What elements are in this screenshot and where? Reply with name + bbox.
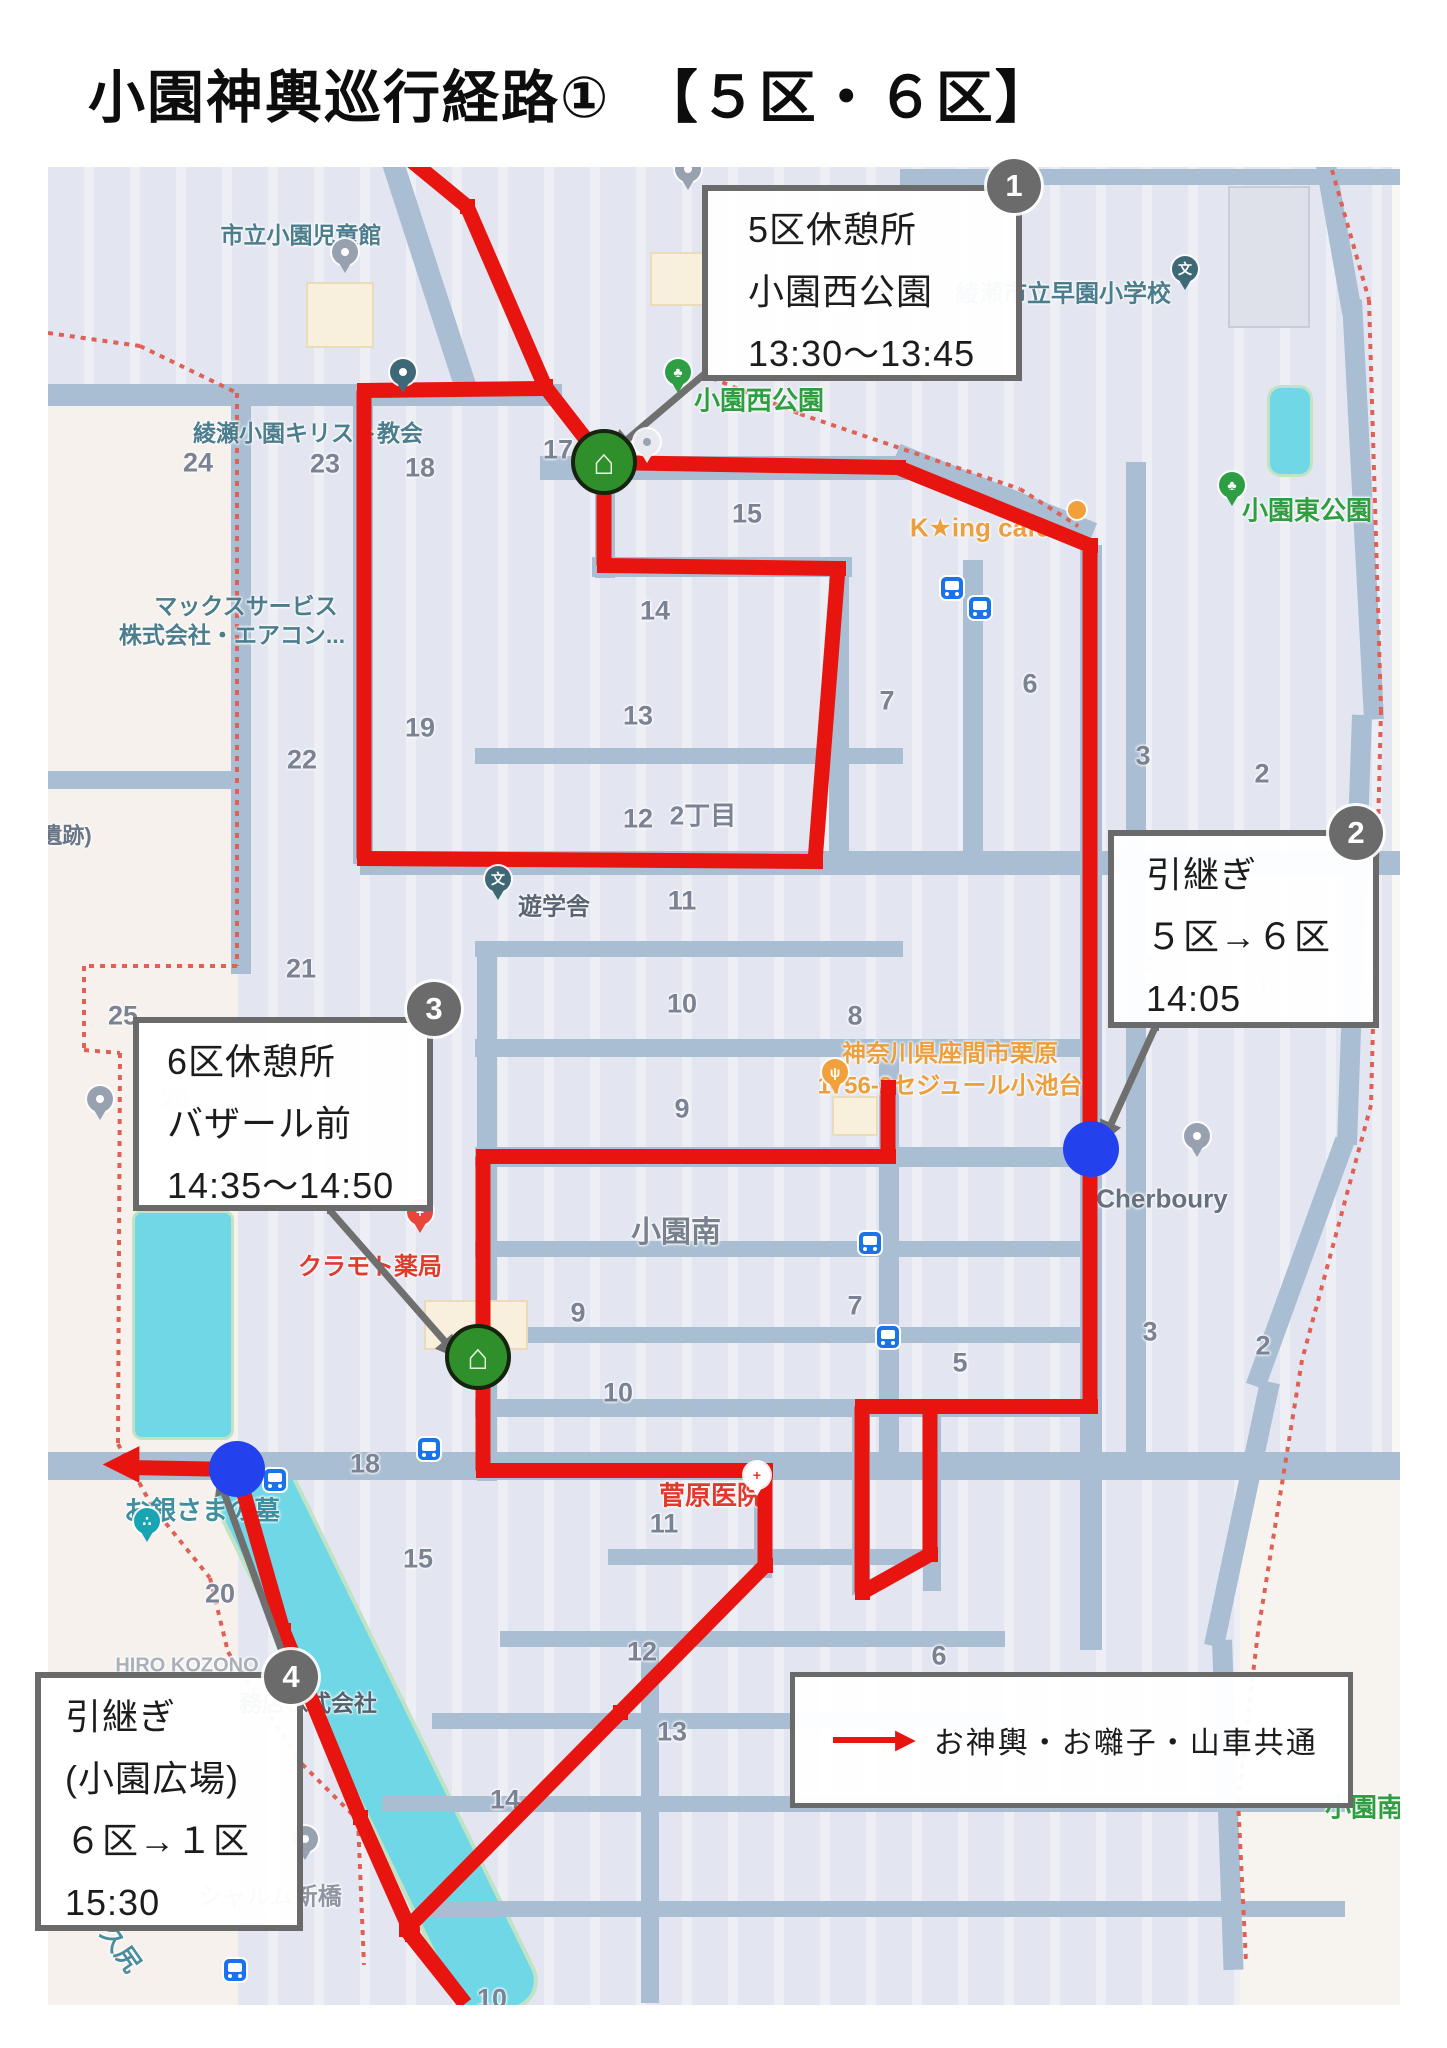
map-label: 神奈川県座間市栗原: [842, 1034, 1058, 1069]
pin-dot: [684, 167, 692, 173]
map-label: 小園南: [631, 1207, 721, 1251]
map-label: 9: [570, 1298, 585, 1329]
legend-box: ▶ お神輿・お囃子・山車共通: [790, 1672, 1353, 1808]
bus-window: [268, 1473, 282, 1482]
map-label: Cherboury: [1096, 1184, 1227, 1215]
map-label: 14: [640, 596, 670, 627]
map-label: 1756-2セジュール小池台: [817, 1066, 1082, 1101]
pin-tail: [1226, 496, 1238, 506]
map-label: 21: [286, 954, 316, 985]
procession-route-joint: [881, 1149, 896, 1164]
pin-tail: [682, 180, 694, 190]
info-line: (小園広場): [65, 1748, 297, 1810]
procession-route: [923, 1406, 938, 1554]
pond: [1267, 385, 1313, 477]
info-line: ６区→１区: [65, 1810, 297, 1872]
legend-arrow-shaft: [833, 1737, 899, 1743]
procession-route-joint: [476, 1463, 491, 1478]
map-label: 2: [1255, 1331, 1270, 1362]
info-box-rest-6: 6区休憩所 バザール前 14:35〜14:50: [133, 1017, 433, 1211]
handover-dot: [209, 1441, 265, 1497]
place-pin: [1184, 1123, 1210, 1157]
bus-window: [881, 1330, 895, 1339]
pin-tail: [829, 1083, 841, 1093]
park-pin-icon: ♣: [1219, 472, 1245, 498]
building: [832, 1096, 878, 1136]
procession-route: [483, 1463, 765, 1478]
map-label: 8: [847, 1001, 862, 1032]
hospital-pin-icon: +: [744, 1462, 770, 1488]
pin-tail: [339, 263, 351, 273]
road: [48, 771, 238, 789]
pin-tail: [397, 383, 409, 393]
pin-tail: [94, 1110, 106, 1120]
bus-stop-icon: [418, 1438, 440, 1460]
info-line: 14:05: [1146, 968, 1373, 1030]
pin-tail: [1191, 1147, 1203, 1157]
info-line: 引継ぎ: [65, 1686, 297, 1748]
bus-window: [945, 581, 959, 590]
map-label: 7: [879, 686, 894, 717]
procession-route-joint: [613, 1705, 628, 1720]
map-label: 13: [623, 701, 653, 732]
grave-pin-icon: ∴: [134, 1508, 160, 1534]
bus-wheel: [881, 1341, 885, 1345]
map-label: 3: [1135, 741, 1150, 772]
grave-pin: ∴: [134, 1508, 160, 1542]
procession-route: [364, 851, 815, 869]
bus-wheel: [955, 592, 959, 596]
hospital-pin: +: [744, 1462, 770, 1496]
school-pin-icon: 文: [1172, 256, 1198, 282]
map-label: 遊学舎: [518, 887, 590, 922]
info-box-handover-4: 引継ぎ (小園広場) ６区→１区 15:30: [35, 1672, 303, 1931]
info-line: 15:30: [65, 1872, 297, 1934]
city-boundary-dotted: [84, 964, 237, 968]
legend-label: お神輿・お囃子・山車共通: [934, 1718, 1318, 1762]
procession-route: [855, 1406, 870, 1592]
map-label: 12: [623, 804, 653, 835]
procession-route: [862, 1399, 1090, 1414]
legend-arrow-icon: ▶: [895, 1724, 916, 1755]
road: [231, 384, 251, 974]
info-line: ５区→６区: [1146, 906, 1373, 968]
park-pin-icon: ♣: [665, 359, 691, 385]
place-pin: [675, 167, 701, 190]
city-boundary-dotted: [235, 393, 239, 966]
pin-dot: [96, 1095, 104, 1103]
info-line: 14:35〜14:50: [167, 1155, 427, 1217]
map-label: 5: [952, 1348, 967, 1379]
restaurant-pin-icon: ψ: [822, 1059, 848, 1085]
pin-tail: [641, 453, 653, 463]
procession-route: [483, 1149, 888, 1164]
bus-wheel: [983, 612, 987, 616]
map-label: 9: [674, 1094, 689, 1125]
bus-wheel: [268, 1484, 272, 1488]
procession-route-joint: [891, 460, 906, 475]
poster-page: 小園神輿巡行経路① 【５区・６区】 市立小園児童館綾瀬小園キリスト教会マックスサ…: [0, 0, 1447, 2048]
building: [306, 282, 374, 348]
map-label: 11: [650, 1509, 679, 1540]
procession-route: [881, 1087, 896, 1156]
pin-dot: [643, 438, 651, 446]
map-label: 12: [627, 1637, 657, 1668]
cafe-pin: [1068, 501, 1086, 519]
bus-wheel: [973, 612, 977, 616]
bus-stop-icon: [859, 1232, 881, 1254]
road: [500, 1631, 1005, 1647]
place-pin: [332, 239, 358, 273]
bus-window: [863, 1236, 877, 1245]
procession-route-joint: [923, 1547, 938, 1562]
map-label: 24: [183, 448, 213, 479]
info-line: 5区休憩所: [748, 199, 1016, 261]
map-label: 17: [543, 435, 573, 466]
info-line: 小園西公園: [748, 261, 1016, 323]
badge-3: 3: [407, 982, 461, 1036]
bus-stop-icon: [224, 1959, 246, 1981]
procession-route-joint: [597, 558, 612, 573]
map-label: 小園西公園: [694, 381, 824, 418]
bus-wheel: [238, 1974, 242, 1978]
map-label: 22: [287, 745, 317, 776]
map-label: 18: [405, 453, 435, 484]
procession-route: [1083, 545, 1098, 1406]
info-box-rest-5: 5区休憩所 小園西公園 13:30〜13:45: [702, 185, 1022, 381]
procession-route-joint: [808, 854, 823, 869]
bus-stop-icon: [941, 577, 963, 599]
handover-dot: [1063, 1121, 1119, 1177]
school-pin-icon: 文: [485, 866, 511, 892]
bus-wheel: [422, 1453, 426, 1457]
district-tint: [1392, 167, 1400, 1462]
bus-wheel: [278, 1484, 282, 1488]
map-label: 6: [1022, 669, 1037, 700]
procession-route-joint: [357, 383, 372, 398]
park-pin: ♣: [665, 359, 691, 393]
pin-dot: [399, 368, 407, 376]
map-label: 綾瀬小園キリスト教会: [193, 414, 423, 448]
rest-house-icon: ⌂: [571, 429, 637, 495]
pin-tail: [751, 1486, 763, 1496]
badge-1: 1: [987, 159, 1041, 213]
pin-tail: [672, 383, 684, 393]
building: [1228, 186, 1310, 328]
info-box-handover-2: 引継ぎ ５区→６区 14:05: [1108, 830, 1379, 1028]
procession-route-joint: [460, 199, 475, 214]
city-boundary-dotted: [82, 966, 86, 1050]
info-line: 13:30〜13:45: [748, 323, 1016, 385]
badge-4: 4: [264, 1650, 318, 1704]
bus-wheel: [873, 1247, 877, 1251]
map-label: 20: [205, 1579, 235, 1610]
procession-route-joint: [353, 1810, 368, 1825]
bus-wheel: [863, 1247, 867, 1251]
bus-wheel: [228, 1974, 232, 1978]
road: [608, 1549, 938, 1565]
map-label: 10: [603, 1378, 633, 1409]
restaurant-pin: ψ: [822, 1059, 848, 1093]
bus-window: [422, 1442, 436, 1451]
procession-route-joint: [1083, 538, 1098, 553]
procession-route-joint: [1083, 1399, 1098, 1414]
map-label: 23: [310, 449, 340, 480]
bus-stop-icon: [969, 597, 991, 619]
procession-route-joint: [855, 1585, 870, 1600]
bus-wheel: [945, 592, 949, 596]
bus-wheel: [891, 1341, 895, 1345]
bus-stop-icon: [264, 1469, 286, 1491]
procession-route-joint: [881, 1080, 896, 1095]
bus-wheel: [432, 1453, 436, 1457]
procession-route-joint: [831, 561, 846, 576]
church-pin: [390, 359, 416, 393]
pin-tail: [141, 1532, 153, 1542]
cafe-pin-icon: [1068, 501, 1086, 519]
map-label: 13: [657, 1717, 687, 1748]
pin-tail: [414, 1223, 426, 1233]
map-label: 15: [732, 499, 762, 530]
map-label: 遺跡): [48, 818, 92, 850]
pin-dot: [341, 248, 349, 256]
procession-route-joint: [357, 851, 372, 866]
procession-route-joint: [476, 1149, 491, 1164]
road: [475, 1241, 1097, 1257]
rest-house-icon: ⌂: [445, 1324, 511, 1390]
road: [475, 941, 903, 957]
place-pin-icon: [634, 429, 660, 455]
procession-route: [476, 1156, 491, 1470]
page-title: 小園神輿巡行経路① 【５区・６区】: [88, 52, 1054, 134]
pin-dot: [1193, 1132, 1201, 1140]
map-label: 11: [668, 886, 697, 917]
info-line: 6区休憩所: [167, 1031, 427, 1093]
place-pin: [634, 429, 660, 463]
map-label: 2丁目: [670, 796, 736, 833]
pin-tail: [1179, 280, 1191, 290]
map-label: 10: [667, 989, 697, 1020]
procession-route-joint: [758, 1558, 773, 1573]
map-label: 18: [350, 1449, 380, 1480]
procession-route-joint: [538, 381, 553, 396]
procession-route-joint: [405, 1927, 420, 1942]
map-label: 小園東公園: [1242, 491, 1372, 528]
place-pin-icon: [332, 239, 358, 265]
park-pin: ♣: [1219, 472, 1245, 506]
pin-tail: [492, 890, 504, 900]
school-pin: 文: [485, 866, 511, 900]
place-pin-icon: [1184, 1123, 1210, 1149]
place-pin: [87, 1086, 113, 1120]
pond: [132, 1210, 234, 1440]
bus-stop-icon: [877, 1326, 899, 1348]
map-label: 15: [403, 1544, 433, 1575]
building: [650, 252, 708, 306]
badge-2: 2: [1329, 806, 1383, 860]
map-label: 19: [405, 713, 435, 744]
church-pin-icon: [390, 359, 416, 385]
procession-route: [604, 558, 838, 576]
school-pin: 文: [1172, 256, 1198, 290]
info-line: バザール前: [167, 1093, 427, 1155]
road: [420, 1901, 1345, 1917]
bus-window: [973, 601, 987, 610]
map-label: 3: [1142, 1317, 1157, 1348]
route-arrowhead-icon: ▶: [103, 1443, 140, 1491]
map-label: 6: [931, 1641, 946, 1672]
procession-route-joint: [855, 1399, 870, 1414]
place-pin-icon: [87, 1086, 113, 1112]
procession-route: [357, 390, 372, 858]
map-label: 株式会社・エアコン...: [119, 616, 345, 650]
bus-window: [228, 1963, 242, 1972]
map-label: 7: [847, 1291, 862, 1322]
road: [475, 1327, 1097, 1343]
map-label: 10: [477, 1984, 507, 2006]
map-label: 2: [1254, 759, 1269, 790]
